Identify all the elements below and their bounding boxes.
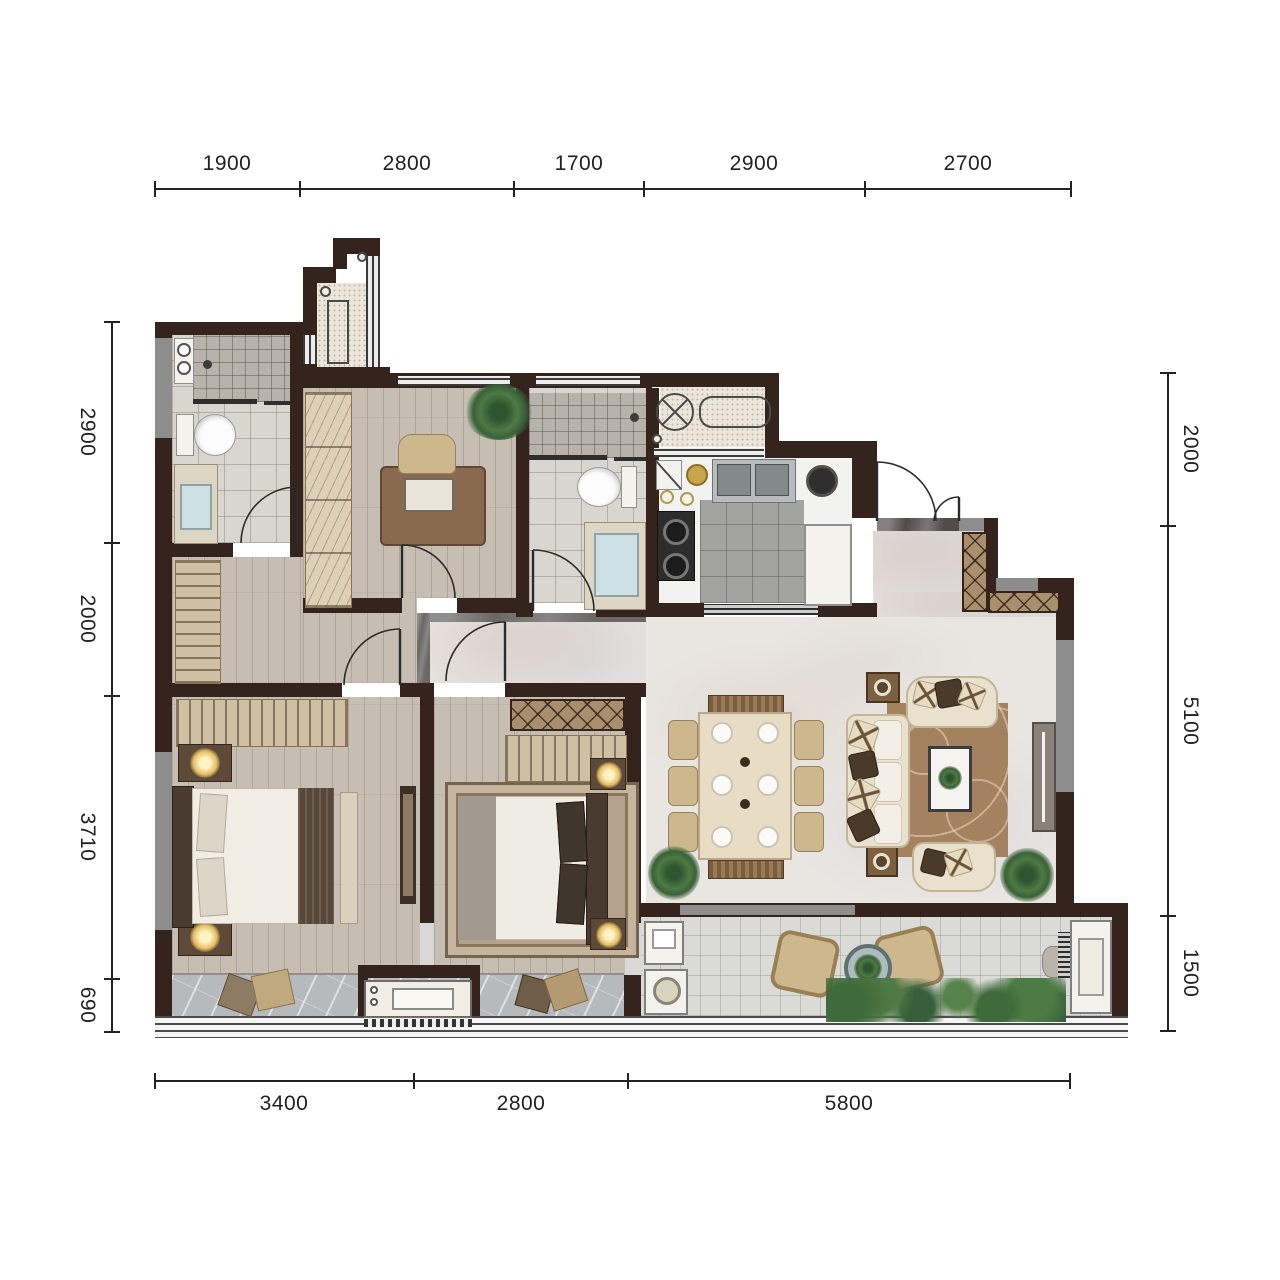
dim-tick bbox=[104, 321, 120, 323]
dim-tick bbox=[1160, 372, 1176, 374]
dim-tick bbox=[299, 181, 301, 197]
dim-label-right-3: 1500 bbox=[1178, 928, 1202, 1018]
dim-line-top bbox=[155, 188, 1071, 190]
dim-tick bbox=[104, 542, 120, 544]
dim-label-top-2: 2800 bbox=[362, 152, 452, 176]
dim-tick bbox=[1160, 915, 1176, 917]
dim-tick bbox=[154, 1073, 156, 1089]
dim-tick bbox=[413, 1073, 415, 1089]
dim-line-bottom bbox=[155, 1080, 1070, 1082]
dim-label-top-1: 1900 bbox=[182, 152, 272, 176]
dim-label-left-1: 2900 bbox=[75, 387, 99, 477]
dim-label-right-1: 2000 bbox=[1178, 404, 1202, 494]
dim-label-left-4: 690 bbox=[75, 960, 99, 1050]
dim-tick bbox=[513, 181, 515, 197]
dim-label-bottom-3: 5800 bbox=[804, 1092, 894, 1116]
dim-tick bbox=[643, 181, 645, 197]
dim-tick bbox=[154, 181, 156, 197]
dim-label-top-3: 1700 bbox=[534, 152, 624, 176]
dim-tick bbox=[1160, 525, 1176, 527]
dim-label-left-2: 2000 bbox=[75, 574, 99, 664]
door-symbols-overlay bbox=[0, 0, 1280, 1280]
dim-tick bbox=[104, 1031, 120, 1033]
dim-tick bbox=[1069, 1073, 1071, 1089]
dim-label-top-4: 2900 bbox=[709, 152, 799, 176]
dim-tick bbox=[864, 181, 866, 197]
dim-line-left bbox=[111, 322, 113, 1032]
dim-tick bbox=[104, 695, 120, 697]
dim-label-bottom-1: 3400 bbox=[239, 1092, 329, 1116]
dim-tick bbox=[104, 978, 120, 980]
dim-label-right-2: 5100 bbox=[1178, 676, 1202, 766]
dim-label-left-3: 3710 bbox=[75, 792, 99, 882]
dim-tick bbox=[627, 1073, 629, 1089]
floor-plan-canvas: 1900 2800 1700 2900 2700 3400 2800 5800 … bbox=[0, 0, 1280, 1280]
dim-line-right bbox=[1167, 373, 1169, 1031]
dim-tick bbox=[1070, 181, 1072, 197]
dim-label-bottom-2: 2800 bbox=[476, 1092, 566, 1116]
dim-label-top-5: 2700 bbox=[923, 152, 1013, 176]
dim-tick bbox=[1160, 1030, 1176, 1032]
